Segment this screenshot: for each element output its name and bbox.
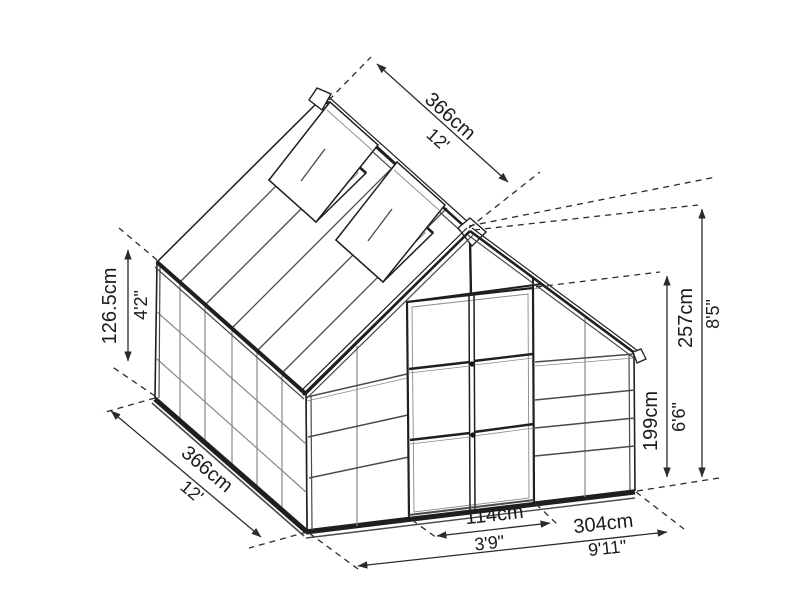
- dimension-side-wall-height: 126.5cm 4'2": [99, 228, 157, 396]
- diagram-canvas: 366cm 12' 126.5cm 4'2" 366cm 12' 114cm 3…: [0, 0, 800, 600]
- door-handle-upper: [469, 361, 474, 366]
- front-width-metric-label: 304cm: [572, 510, 634, 538]
- ground-reference-line: [637, 478, 719, 491]
- rake-end-cap-right: [633, 349, 646, 363]
- front-width-imperial-label: 9'11": [587, 536, 627, 560]
- side-wall-height-imperial-label: 4'2": [131, 290, 151, 320]
- door-handle-lower: [470, 432, 475, 437]
- double-door: [407, 288, 534, 518]
- side-wall-height-metric-label: 126.5cm: [99, 268, 121, 345]
- door-height-imperial-label: 6'6": [669, 402, 689, 432]
- peak-height-imperial-label: 8'5": [703, 299, 723, 329]
- door-height-metric-label: 199cm: [640, 391, 662, 451]
- greenhouse-dimension-diagram: 366cm 12' 126.5cm 4'2" 366cm 12' 114cm 3…: [0, 0, 800, 600]
- peak-height-metric-label: 257cm: [675, 288, 697, 348]
- side-length-imperial-label: 12': [176, 476, 207, 506]
